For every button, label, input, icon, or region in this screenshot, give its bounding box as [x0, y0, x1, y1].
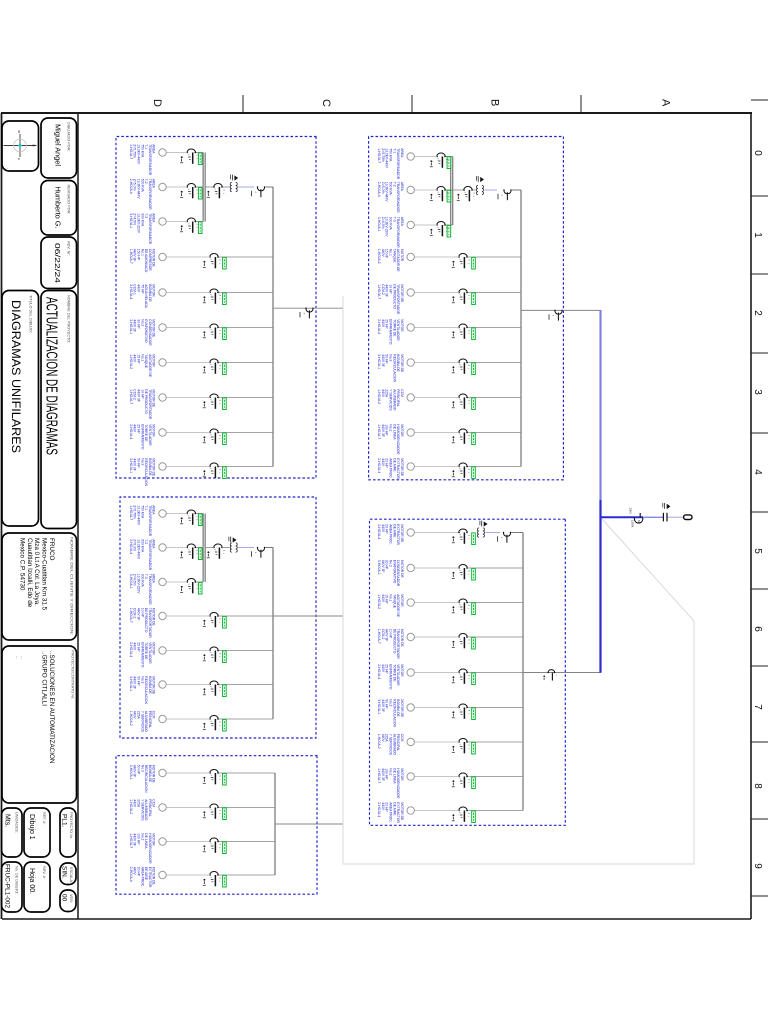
svg-text:1-HOJA-2: 1-HOJA-2	[377, 249, 381, 264]
svg-text:1-HOJA-2: 1-HOJA-2	[377, 594, 381, 609]
svg-text:3-HOJA-1: 3-HOJA-1	[377, 699, 381, 714]
svg-text:3-HOJA-1: 3-HOJA-1	[377, 217, 381, 232]
svg-text:1-HOJA-7: 1-HOJA-7	[129, 833, 133, 848]
svg-text:1-HOJA-7: 1-HOJA-7	[377, 424, 381, 439]
svg-text:1-HOJA-2: 1-HOJA-2	[377, 389, 381, 404]
svg-text:0: 0	[752, 150, 763, 156]
svg-text:REVISADO POR:: REVISADO POR:	[67, 185, 71, 215]
svg-text:1-HOJA-2: 1-HOJA-2	[129, 354, 133, 369]
svg-text:8: 8	[752, 783, 763, 789]
svg-text:1-HOJA-7: 1-HOJA-7	[129, 505, 133, 520]
svg-text:E: E	[17, 158, 21, 160]
svg-text:Mza 0 Lt A Col. La Joya.: Mza 0 Lt A Col. La Joya.	[33, 538, 40, 606]
svg-text:S: S	[0, 144, 4, 146]
svg-text:2-HOJA-4: 2-HOJA-4	[129, 867, 133, 882]
svg-text:REV. #:: REV. #:	[42, 866, 46, 879]
svg-text:3-HOJA-1: 3-HOJA-1	[129, 458, 133, 473]
svg-text:PROYECTO/CONTRATO Nr:: PROYECTO/CONTRATO Nr:	[71, 650, 75, 699]
svg-text:..: ..	[14, 656, 20, 659]
svg-text:TITULO DEL DIBUJO:: TITULO DEL DIBUJO:	[29, 295, 33, 333]
svg-text:D: D	[151, 99, 163, 107]
svg-text:Mts.: Mts.	[4, 814, 11, 827]
svg-text:NOMBRE DEL PROYECTO:: NOMBRE DEL PROYECTO:	[67, 295, 71, 343]
svg-text:5: 5	[752, 548, 763, 554]
svg-text:REV. Nr:: REV. Nr:	[67, 241, 71, 256]
svg-text:Miguel Angel: Miguel Angel	[54, 124, 61, 166]
svg-text:00: 00	[61, 894, 68, 902]
svg-text:2-HOJA-4: 2-HOJA-4	[377, 664, 381, 679]
svg-text:7: 7	[752, 704, 763, 710]
svg-text:PROYECTO Nr: PROYECTO Nr	[69, 812, 73, 839]
svg-text:UNIDADES:: UNIDADES:	[15, 812, 19, 833]
svg-text:3-HOJA-1: 3-HOJA-1	[129, 765, 133, 780]
svg-text:Mexico-Cuatitlan Km 31.5: Mexico-Cuatitlan Km 31.5	[41, 538, 48, 611]
svg-text:2-HOJA-4: 2-HOJA-4	[377, 524, 381, 539]
svg-text:FRUC-PL1-002: FRUC-PL1-002	[4, 864, 11, 909]
svg-text:1-HOJA-2: 1-HOJA-2	[129, 711, 133, 726]
svg-text:ESCALA:: ESCALA:	[69, 867, 73, 883]
svg-text:2: 2	[752, 310, 763, 316]
svg-text:Mexico C.P. 54730: Mexico C.P. 54730	[18, 538, 25, 591]
svg-text:06/22/24: 06/22/24	[53, 243, 62, 283]
svg-text:1: 1	[752, 232, 763, 238]
svg-text:ACTUALIZACION DE DIAGRAMAS: ACTUALIZACION DE DIAGRAMAS	[43, 297, 60, 455]
svg-text:1-HOJA-7: 1-HOJA-7	[377, 284, 381, 299]
svg-text:3-HOJA-1: 3-HOJA-1	[129, 574, 133, 589]
svg-text:6: 6	[752, 626, 763, 632]
svg-text:A: A	[666, 507, 670, 509]
svg-text:2-HOJA-4: 2-HOJA-4	[129, 284, 133, 299]
svg-text:C: C	[320, 99, 332, 107]
svg-text:3-HOJA-1: 3-HOJA-1	[377, 560, 381, 575]
svg-text:1-HOJA-2: 1-HOJA-2	[377, 734, 381, 749]
svg-text:Cuautitlan Izcalli, Edo de: Cuautitlan Izcalli, Edo de	[26, 538, 33, 608]
svg-text:2-HOJA-4: 2-HOJA-4	[377, 182, 381, 197]
svg-text:2-HOJA-4: 2-HOJA-4	[129, 642, 133, 657]
svg-text:PL1.: PL1.	[61, 814, 68, 828]
svg-text:No. DE DIBUJO:: No. DE DIBUJO:	[15, 866, 19, 894]
svg-text:1200A: 1200A	[631, 520, 635, 528]
svg-text:2-HOJA-4: 2-HOJA-4	[377, 458, 381, 473]
svg-text:1-HOJA-7: 1-HOJA-7	[129, 249, 133, 264]
svg-text:W: W	[17, 130, 21, 133]
svg-text:9: 9	[752, 863, 763, 869]
svg-text:2-HOJA-4: 2-HOJA-4	[377, 802, 381, 817]
svg-text:1-HOJA-7: 1-HOJA-7	[129, 608, 133, 623]
svg-text:1-HOJA-7: 1-HOJA-7	[377, 768, 381, 783]
svg-text:Dibujo 1: Dibujo 1	[28, 814, 35, 840]
svg-text:1-HOJA-7: 1-HOJA-7	[129, 389, 133, 404]
svg-text:1-HOJA-7: 1-HOJA-7	[129, 144, 133, 159]
svg-text:2-HOJA-4: 2-HOJA-4	[129, 424, 133, 439]
svg-text:3: 3	[752, 389, 763, 395]
svg-text:A: A	[660, 99, 672, 107]
svg-text:23KV: 23KV	[629, 508, 633, 515]
svg-text:4: 4	[752, 469, 763, 475]
svg-text:3-HOJA-1: 3-HOJA-1	[377, 354, 381, 369]
svg-text:FRUCO: FRUCO	[48, 538, 55, 560]
svg-text:1-HOJA-7: 1-HOJA-7	[377, 148, 381, 163]
svg-text:VER:: VER:	[69, 894, 73, 903]
svg-text:2-HOJA-4: 2-HOJA-4	[377, 319, 381, 334]
svg-text:Humberto G.: Humberto G.	[54, 187, 61, 229]
svg-text:1-HOJA-2: 1-HOJA-2	[129, 799, 133, 814]
svg-text:..SOLUCIONES EN AUTOMATIZACION: ..SOLUCIONES EN AUTOMATIZACION	[48, 651, 55, 764]
svg-text:DIAGRAMAS UNIFILARES: DIAGRAMAS UNIFILARES	[9, 300, 21, 453]
svg-text:N: N	[32, 144, 36, 146]
svg-text:REF. #:: REF. #:	[42, 812, 46, 824]
svg-text:2-HOJA-4: 2-HOJA-4	[129, 179, 133, 194]
svg-text:2-HOJA-4: 2-HOJA-4	[129, 539, 133, 554]
svg-text:NOMBRE DEL CLIENTE Y DIRECCION: NOMBRE DEL CLIENTE Y DIRECCION:	[70, 537, 74, 635]
svg-text:B: B	[489, 99, 501, 106]
svg-text:..GRUPO CITLALLI: ..GRUPO CITLALLI	[41, 651, 48, 706]
svg-text:3-HOJA-1: 3-HOJA-1	[129, 319, 133, 334]
svg-text:3-HOJA-1: 3-HOJA-1	[129, 676, 133, 691]
svg-text:1-HOJA-7: 1-HOJA-7	[377, 629, 381, 644]
svg-text:DIBUJADO POR:: DIBUJADO POR:	[67, 122, 71, 152]
svg-text:SIN.: SIN.	[61, 866, 68, 879]
svg-text:3-HOJA-1: 3-HOJA-1	[129, 213, 133, 228]
svg-text:Hoja 00.: Hoja 00.	[28, 868, 35, 894]
